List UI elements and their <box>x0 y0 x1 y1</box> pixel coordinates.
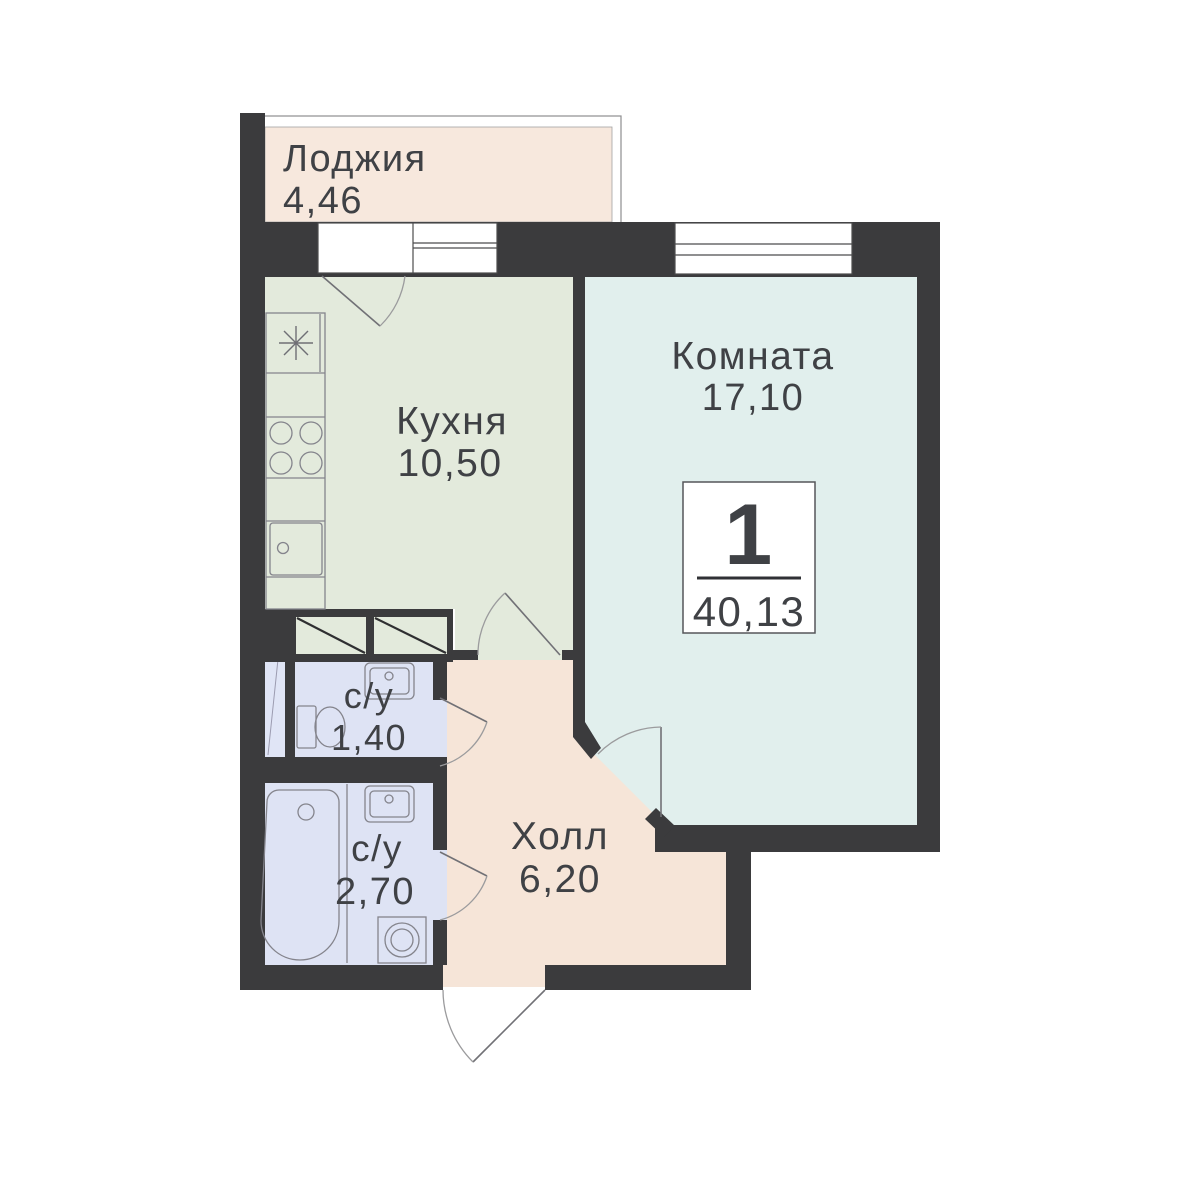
wall-kitchen-room <box>573 277 585 729</box>
wall-bottom-right <box>545 965 751 990</box>
wall-room-bottom <box>655 825 940 852</box>
area-living-room: 17,10 <box>702 377 805 419</box>
label-loggia: Лоджия <box>283 138 427 180</box>
floor-plan-svg: 1 40,13 Лоджия 4,46 Кухня 10,50 Комната … <box>0 0 1181 1181</box>
floor-plan-page: 1 40,13 Лоджия 4,46 Кухня 10,50 Комната … <box>0 0 1181 1181</box>
fridge-snowflake-icon <box>279 326 313 360</box>
wall-kitchen-hall-right <box>562 650 583 660</box>
label-hall: Холл <box>511 815 609 858</box>
wall-bath-right-mid <box>433 766 447 850</box>
label-kitchen: Кухня <box>396 400 508 443</box>
living-room-window <box>675 223 852 274</box>
unit-badge-total-area: 40,13 <box>693 588 806 635</box>
unit-badge-rooms-count: 1 <box>724 487 773 583</box>
area-bathroom-large: 2,70 <box>335 871 415 913</box>
wall-between-bathrooms <box>265 757 447 783</box>
label-bathroom-large: с/у <box>351 828 403 869</box>
area-hall: 6,20 <box>519 858 601 901</box>
area-bathroom-small: 1,40 <box>331 717 407 758</box>
label-bathroom-small: с/у <box>344 675 395 716</box>
unit-badge: 1 40,13 <box>683 482 815 635</box>
wall-shaft-right <box>285 609 295 760</box>
label-living-room: Комната <box>671 335 834 378</box>
wall-bath-large-right-bottom <box>433 920 447 965</box>
wall-bottom-left <box>240 965 443 990</box>
wall-bath-small-right-top <box>433 660 447 700</box>
area-loggia: 4,46 <box>283 180 363 222</box>
area-kitchen: 10,50 <box>397 442 502 485</box>
wall-right <box>917 222 940 852</box>
